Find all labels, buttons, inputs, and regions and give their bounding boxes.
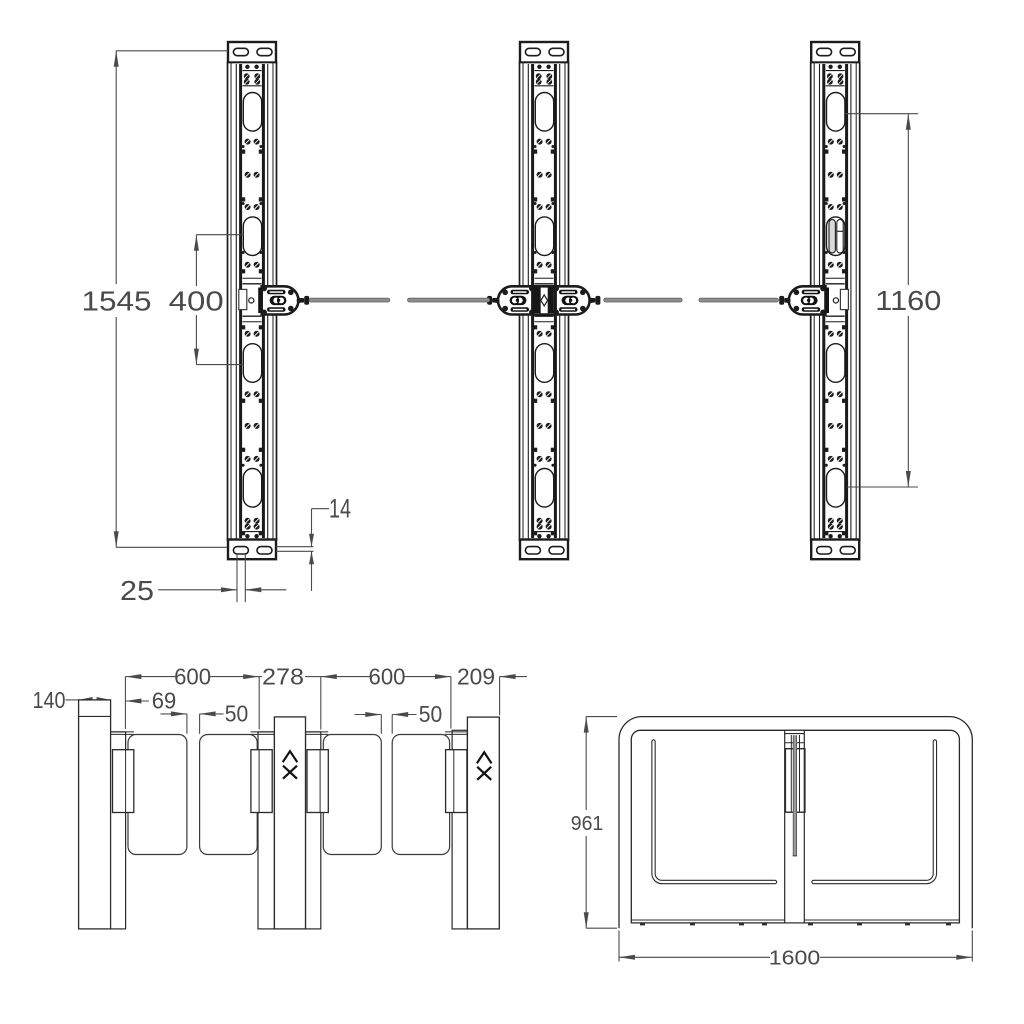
- svg-text:600: 600: [174, 664, 211, 690]
- svg-text:50: 50: [225, 701, 249, 727]
- svg-text:278: 278: [262, 664, 304, 690]
- svg-text:961: 961: [571, 812, 604, 835]
- svg-text:600: 600: [369, 664, 406, 690]
- svg-text:1545: 1545: [82, 285, 152, 316]
- svg-text:140: 140: [33, 687, 66, 713]
- svg-text:400: 400: [169, 285, 224, 316]
- svg-text:1600: 1600: [769, 946, 821, 969]
- svg-text:1160: 1160: [875, 285, 941, 316]
- svg-text:14: 14: [329, 494, 351, 524]
- svg-text:209: 209: [457, 664, 495, 690]
- svg-text:50: 50: [419, 701, 443, 727]
- svg-text:69: 69: [152, 688, 177, 714]
- svg-text:25: 25: [120, 575, 154, 606]
